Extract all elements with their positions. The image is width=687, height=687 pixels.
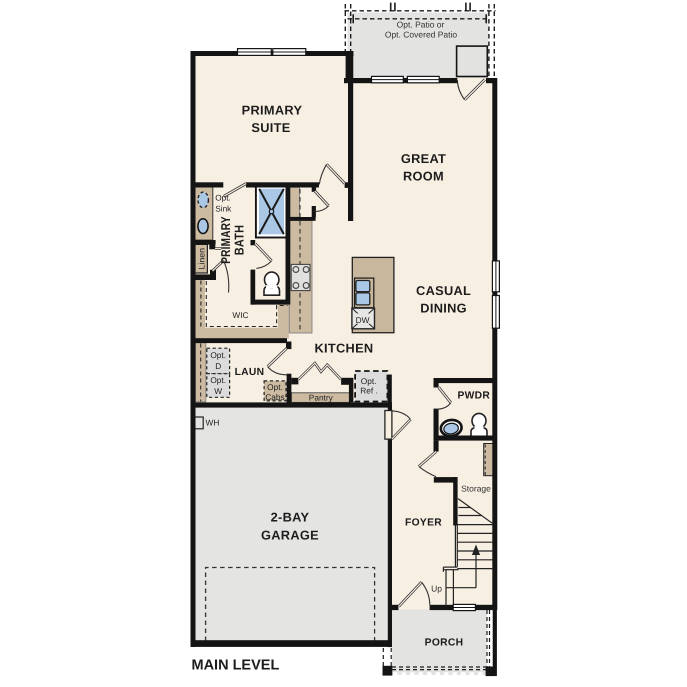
svg-text:MAIN LEVEL: MAIN LEVEL [192,658,280,674]
svg-text:Opt.: Opt. [267,382,283,392]
svg-text:KITCHEN: KITCHEN [315,341,374,356]
svg-text:PRIMARY: PRIMARY [242,102,303,117]
svg-text:Opt.: Opt. [210,375,226,385]
svg-text:Opt.: Opt. [210,350,226,360]
svg-text:Ref .: Ref . [360,386,378,396]
svg-text:Up: Up [431,584,442,594]
svg-text:GARAGE: GARAGE [261,527,319,542]
svg-text:PWDR: PWDR [457,390,490,401]
svg-text:WH: WH [206,417,220,427]
svg-text:ROOM: ROOM [403,169,444,184]
svg-text:BATH: BATH [231,225,246,256]
svg-text:PORCH: PORCH [425,638,464,649]
svg-text:GREAT: GREAT [401,151,446,166]
svg-text:DINING: DINING [420,300,467,315]
svg-text:2-BAY: 2-BAY [271,510,310,525]
svg-text:Storage: Storage [461,484,491,494]
svg-text:W: W [214,386,222,396]
svg-text:SUITE: SUITE [251,120,290,135]
svg-text:WIC: WIC [232,310,248,320]
svg-text:D: D [215,361,221,371]
svg-text:FOYER: FOYER [405,518,442,529]
svg-text:Pantry: Pantry [309,393,334,403]
svg-text:CASUAL: CASUAL [416,283,471,298]
svg-text:DW: DW [356,315,370,325]
svg-text:Opt.: Opt. [215,192,231,202]
svg-text:Opt. Covered Patio: Opt. Covered Patio [385,29,458,39]
svg-text:Sink: Sink [215,204,232,214]
svg-text:Cabs: Cabs [265,392,284,402]
svg-text:Linen: Linen [197,248,207,270]
svg-text:Opt. Patio or: Opt. Patio or [397,19,445,29]
svg-text:Opt.: Opt. [361,376,377,386]
svg-text:LAUN: LAUN [235,367,265,378]
